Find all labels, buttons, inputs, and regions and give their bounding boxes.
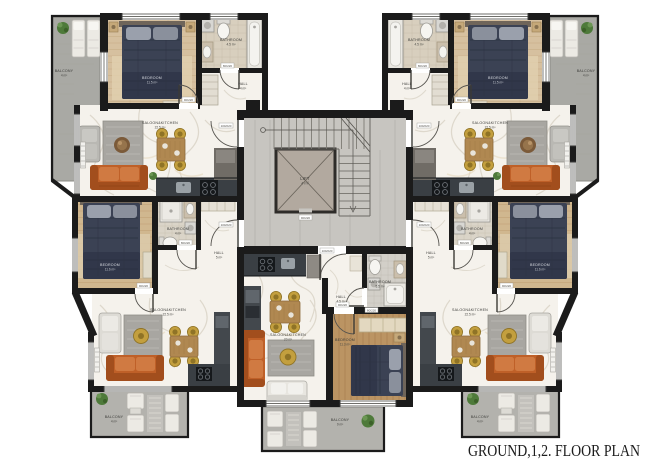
- svg-text:20 m²: 20 m²: [284, 338, 292, 342]
- svg-text:100/220: 100/220: [221, 223, 232, 227]
- svg-text:90/220: 90/220: [139, 284, 149, 288]
- svg-text:90/220: 90/220: [502, 284, 512, 288]
- svg-text:4 m²: 4 m²: [404, 87, 410, 91]
- svg-text:HALL: HALL: [336, 295, 346, 299]
- svg-text:80/220: 80/220: [181, 241, 191, 245]
- svg-text:HALL: HALL: [238, 82, 248, 86]
- svg-text:BEDROOM: BEDROOM: [530, 263, 550, 267]
- svg-text:100/220: 100/220: [322, 249, 333, 253]
- svg-text:BATHROOM: BATHROOM: [220, 38, 242, 42]
- svg-text:SALOON&KITCHEN: SALOON&KITCHEN: [150, 308, 186, 312]
- svg-text:BEDROOM: BEDROOM: [335, 338, 355, 342]
- svg-text:4 m²: 4 m²: [61, 74, 67, 78]
- svg-text:90/220: 90/220: [457, 98, 467, 102]
- svg-text:BALCONY: BALCONY: [577, 69, 596, 73]
- svg-text:BATHROOM: BATHROOM: [369, 280, 391, 284]
- svg-text:80/220: 80/220: [418, 64, 428, 68]
- svg-text:80/220: 80/220: [367, 308, 377, 312]
- svg-text:4 m²: 4 m²: [175, 232, 181, 236]
- svg-text:BEDROOM: BEDROOM: [488, 76, 508, 80]
- svg-text:BALCONY: BALCONY: [55, 69, 74, 73]
- svg-text:9 m²: 9 m²: [337, 423, 343, 427]
- svg-text:SALOON&KITCHEN: SALOON&KITCHEN: [452, 308, 488, 312]
- svg-text:80/220: 80/220: [223, 64, 233, 68]
- svg-text:22.5 m²: 22.5 m²: [163, 313, 174, 317]
- svg-text:BALCONY: BALCONY: [331, 418, 350, 422]
- svg-text:100/220: 100/220: [419, 223, 430, 227]
- svg-text:HALL: HALL: [426, 251, 436, 255]
- svg-text:BALCONY: BALCONY: [105, 415, 124, 419]
- svg-text:4 m²: 4 m²: [583, 74, 589, 78]
- svg-text:22.5 m²: 22.5 m²: [465, 313, 476, 317]
- svg-text:11.6 m²: 11.6 m²: [535, 268, 546, 272]
- svg-text:BALCONY: BALCONY: [471, 415, 490, 419]
- svg-text:22.5 m²: 22.5 m²: [485, 126, 496, 130]
- svg-text:HALL: HALL: [214, 251, 224, 255]
- svg-text:LIFT: LIFT: [300, 176, 310, 181]
- svg-text:4 m²: 4 m²: [111, 420, 117, 424]
- svg-text:100/220: 100/220: [419, 124, 430, 128]
- svg-text:BATHROOM: BATHROOM: [408, 38, 430, 42]
- svg-text:11.3 m²: 11.3 m²: [340, 343, 351, 347]
- svg-text:5 m²: 5 m²: [216, 256, 222, 260]
- svg-text:BEDROOM: BEDROOM: [142, 76, 162, 80]
- svg-text:BEDROOM: BEDROOM: [100, 263, 120, 267]
- svg-text:4 m²: 4 m²: [469, 232, 475, 236]
- svg-text:11.6 m²: 11.6 m²: [105, 268, 116, 272]
- svg-text:SALOON&KITCHEN: SALOON&KITCHEN: [142, 121, 178, 125]
- svg-text:5 m²: 5 m²: [428, 256, 434, 260]
- svg-text:HALL: HALL: [402, 82, 412, 86]
- svg-text:11.5 m²: 11.5 m²: [493, 81, 504, 85]
- svg-text:SALOON&KITCHEN: SALOON&KITCHEN: [270, 333, 306, 337]
- svg-text:4.5 m²: 4.5 m²: [336, 300, 345, 304]
- svg-text:90/220: 90/220: [184, 98, 194, 102]
- svg-text:11.5 m²: 11.5 m²: [147, 81, 158, 85]
- svg-text:BATHROOM: BATHROOM: [167, 227, 189, 231]
- svg-text:22.5 m²: 22.5 m²: [155, 126, 166, 130]
- svg-text:100/220: 100/220: [221, 124, 232, 128]
- svg-text:4 m²: 4 m²: [477, 420, 483, 424]
- svg-text:SALOON&KITCHEN: SALOON&KITCHEN: [472, 121, 508, 125]
- svg-text:4.5 m²: 4.5 m²: [226, 43, 235, 47]
- svg-text:4 m²: 4 m²: [240, 87, 246, 91]
- svg-text:BATHROOM: BATHROOM: [461, 227, 483, 231]
- svg-text:4 m²: 4 m²: [301, 182, 309, 186]
- svg-text:90/220: 90/220: [301, 216, 311, 220]
- svg-text:80/220: 80/220: [460, 241, 470, 245]
- svg-text:4.5 m²: 4.5 m²: [414, 43, 423, 47]
- svg-text:5.5 m²: 5.5 m²: [375, 285, 384, 289]
- svg-text:GROUND,1,2. FLOOR PLAN: GROUND,1,2. FLOOR PLAN: [468, 441, 640, 460]
